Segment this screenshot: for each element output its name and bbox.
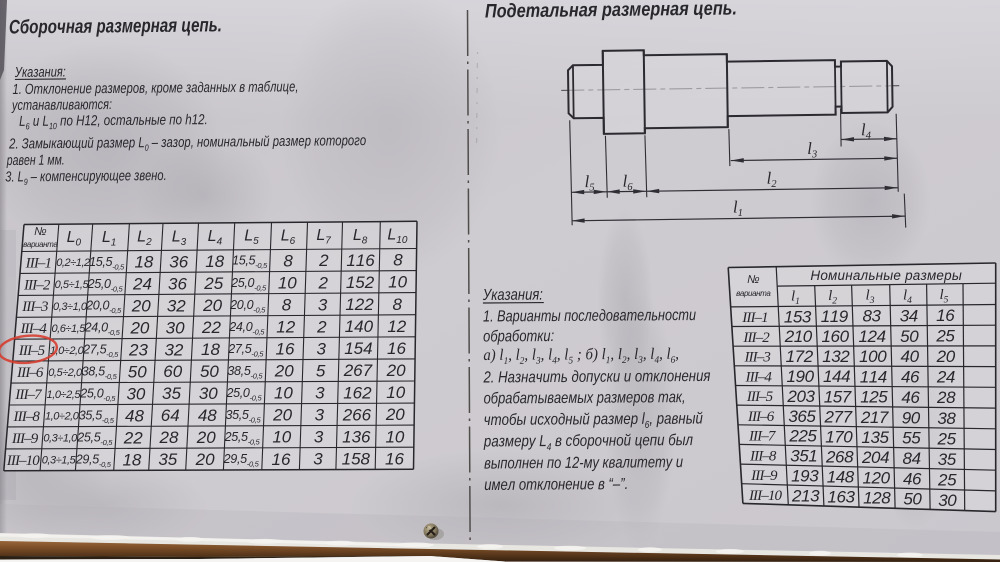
svg-text:обрабатываемых размеров так,: обрабатываемых размеров так,	[484, 389, 686, 407]
svg-text:203: 203	[786, 387, 815, 406]
svg-text:136: 136	[342, 427, 371, 446]
svg-text:24: 24	[132, 275, 152, 294]
svg-text:III–5: III–5	[746, 389, 774, 405]
svg-text:23: 23	[128, 341, 148, 360]
svg-text:12: 12	[387, 317, 406, 336]
svg-text:0,3÷1,0: 0,3÷1,0	[53, 301, 88, 313]
svg-text:Указания:: Указания:	[482, 287, 543, 304]
svg-text:0,3÷1,5: 0,3÷1,5	[42, 455, 77, 467]
svg-text:III–4: III–4	[745, 369, 773, 385]
svg-text:64: 64	[161, 406, 180, 425]
svg-text:равен 1 мм.: равен 1 мм.	[6, 152, 65, 169]
svg-text:153: 153	[784, 307, 812, 326]
svg-text:154: 154	[344, 339, 372, 358]
svg-text:50: 50	[128, 362, 147, 381]
svg-text:18: 18	[122, 450, 141, 469]
svg-text:8: 8	[283, 252, 293, 271]
svg-text:162: 162	[343, 383, 372, 402]
svg-text:1,0÷2,5: 1,0÷2,5	[47, 389, 82, 401]
svg-text:III–7: III–7	[14, 387, 43, 403]
svg-text:16: 16	[385, 449, 404, 468]
svg-text:16: 16	[276, 340, 295, 359]
svg-text:152: 152	[346, 273, 375, 292]
svg-text:160: 160	[822, 327, 850, 346]
svg-text:46: 46	[901, 388, 920, 407]
svg-text:30: 30	[938, 491, 957, 510]
svg-text:10: 10	[278, 274, 297, 293]
svg-text:10: 10	[274, 384, 293, 403]
svg-text:10: 10	[385, 427, 404, 446]
svg-text:12: 12	[276, 318, 295, 337]
svg-text:20: 20	[274, 362, 294, 381]
svg-text:20: 20	[131, 297, 151, 316]
svg-text:48: 48	[125, 406, 144, 425]
svg-text:46: 46	[901, 368, 920, 387]
svg-text:135: 135	[861, 428, 889, 447]
svg-text:18: 18	[201, 340, 220, 359]
svg-text:20: 20	[272, 406, 292, 425]
svg-text:3: 3	[318, 295, 328, 314]
svg-text:варианта: варианта	[23, 240, 58, 249]
svg-text:0,5÷2,0: 0,5÷2,0	[48, 367, 83, 379]
svg-text:217: 217	[860, 408, 889, 427]
svg-text:50: 50	[903, 490, 922, 509]
svg-text:210: 210	[784, 327, 813, 346]
svg-text:0,2÷1,2: 0,2÷1,2	[56, 257, 90, 269]
svg-text:170: 170	[825, 427, 853, 446]
svg-text:10: 10	[388, 273, 407, 292]
svg-text:60: 60	[163, 362, 182, 381]
svg-text:124: 124	[859, 327, 886, 346]
svg-text:5: 5	[316, 361, 326, 380]
svg-text:120: 120	[863, 468, 891, 487]
svg-text:20: 20	[129, 319, 149, 338]
svg-text:30: 30	[166, 318, 185, 337]
svg-text:выполнен по 12-му квалитету и: выполнен по 12-му квалитету и	[484, 454, 683, 472]
svg-text:48: 48	[198, 406, 217, 425]
svg-text:225: 225	[788, 427, 817, 446]
svg-text:119: 119	[821, 307, 849, 326]
svg-text:266: 266	[342, 405, 372, 424]
svg-text:157: 157	[824, 387, 852, 406]
svg-text:III–2: III–2	[23, 277, 51, 293]
svg-text:20: 20	[385, 405, 405, 424]
svg-text:0,3÷1,0: 0,3÷1,0	[43, 433, 78, 445]
svg-text:20: 20	[202, 296, 222, 315]
svg-text:90: 90	[902, 408, 921, 427]
svg-text:III–6: III–6	[747, 409, 775, 425]
svg-text:III–6: III–6	[16, 365, 44, 381]
svg-text:16: 16	[272, 450, 291, 469]
svg-text:351: 351	[790, 447, 817, 466]
svg-text:Сборочная размерная цепь.: Сборочная размерная цепь.	[9, 14, 222, 38]
svg-text:2. Назначить допуски и отклоне: 2. Назначить допуски и отклонения	[483, 368, 711, 387]
svg-text:32: 32	[167, 296, 186, 315]
svg-text:Номинальные размеры: Номинальные размеры	[810, 268, 962, 283]
svg-text:25: 25	[935, 327, 955, 346]
svg-text:III–8: III–8	[749, 448, 777, 464]
svg-text:122: 122	[345, 295, 374, 314]
svg-text:25: 25	[937, 470, 957, 489]
svg-text:варианта: варианта	[736, 289, 771, 298]
svg-text:128: 128	[863, 489, 891, 508]
svg-text:III–8: III–8	[13, 409, 41, 425]
svg-text:20: 20	[195, 450, 215, 469]
svg-text:Подетальная размерная цепь.: Подетальная размерная цепь.	[485, 0, 737, 22]
svg-text:125: 125	[860, 388, 888, 407]
svg-text:20: 20	[936, 347, 956, 366]
svg-text:50: 50	[900, 327, 919, 346]
svg-text:163: 163	[827, 488, 855, 507]
svg-text:83: 83	[862, 307, 881, 326]
svg-text:3: 3	[315, 406, 325, 425]
svg-text:20: 20	[386, 361, 406, 380]
svg-text:28: 28	[936, 388, 956, 407]
svg-text:55: 55	[902, 429, 921, 448]
svg-text:1. Отклонение размеров, кроме: 1. Отклонение размеров, кроме заданных в…	[12, 79, 298, 98]
svg-text:114: 114	[860, 367, 887, 386]
svg-text:III–9: III–9	[11, 431, 39, 447]
svg-text:размеру L4 в сборочной цепи бы: размеру L4 в сборочной цепи был	[483, 432, 693, 453]
svg-text:100: 100	[859, 347, 887, 366]
svg-text:25: 25	[203, 274, 223, 293]
svg-text:158: 158	[342, 450, 371, 469]
svg-text:0,6÷1,5: 0,6÷1,5	[51, 323, 86, 335]
svg-text:№: №	[34, 226, 47, 238]
svg-text:III–1: III–1	[741, 310, 768, 326]
svg-text:36: 36	[169, 252, 188, 271]
svg-text:18: 18	[205, 252, 224, 271]
svg-text:267: 267	[343, 361, 373, 380]
svg-text:365: 365	[788, 407, 816, 426]
svg-text:обработки:: обработки:	[483, 328, 554, 345]
svg-text:172: 172	[786, 347, 814, 366]
svg-text:1,0÷2,0: 1,0÷2,0	[45, 411, 80, 423]
svg-text:40: 40	[901, 347, 920, 366]
svg-text:8: 8	[282, 296, 292, 315]
svg-text:24: 24	[936, 368, 955, 387]
svg-text:36: 36	[168, 274, 187, 293]
svg-text:3: 3	[314, 428, 324, 447]
svg-text:Указания:: Указания:	[14, 64, 66, 80]
svg-text:16: 16	[387, 339, 406, 358]
svg-text:25: 25	[937, 429, 957, 448]
svg-text:2: 2	[316, 317, 327, 336]
svg-text:10: 10	[386, 383, 405, 402]
svg-text:193: 193	[791, 467, 819, 486]
svg-text:34: 34	[900, 307, 918, 326]
svg-text:35: 35	[938, 450, 957, 469]
svg-text:38: 38	[937, 409, 956, 428]
svg-text:III–5: III–5	[18, 343, 46, 359]
svg-text:1. Варианты последовательности: 1. Варианты последовательности	[483, 307, 696, 325]
svg-text:3: 3	[316, 339, 326, 358]
svg-text:2: 2	[318, 251, 329, 270]
svg-text:30: 30	[199, 384, 218, 403]
svg-text:148: 148	[827, 468, 855, 487]
svg-text:8: 8	[392, 295, 402, 314]
svg-text:III–10: III–10	[6, 453, 40, 469]
svg-text:30: 30	[126, 384, 145, 403]
svg-text:III–1: III–1	[25, 255, 52, 271]
svg-text:32: 32	[164, 340, 183, 359]
svg-text:140: 140	[345, 317, 374, 336]
svg-text:28: 28	[159, 428, 179, 447]
svg-text:144: 144	[823, 367, 850, 386]
svg-text:50: 50	[200, 362, 219, 381]
svg-text:204: 204	[861, 448, 889, 467]
svg-text:3: 3	[313, 450, 323, 469]
svg-text:№: №	[747, 274, 760, 286]
svg-text:3: 3	[315, 384, 325, 403]
svg-text:10: 10	[272, 428, 291, 447]
svg-text:35: 35	[158, 450, 177, 469]
svg-text:132: 132	[822, 347, 850, 366]
svg-text:84: 84	[903, 449, 921, 468]
svg-text:190: 190	[787, 367, 815, 386]
svg-text:116: 116	[346, 251, 375, 270]
svg-text:16: 16	[936, 306, 955, 325]
svg-text:8: 8	[393, 251, 403, 270]
svg-text:20: 20	[196, 428, 216, 447]
svg-text:18: 18	[134, 253, 153, 272]
svg-text:213: 213	[791, 487, 820, 506]
svg-text:имел отклонение в “–”.: имел отклонение в “–”.	[484, 476, 628, 494]
svg-text:35: 35	[162, 384, 181, 403]
svg-text:22: 22	[123, 428, 143, 447]
svg-text:III–9: III–9	[750, 468, 778, 484]
svg-text:46: 46	[903, 469, 922, 488]
svg-text:2: 2	[317, 273, 328, 292]
svg-text:277: 277	[824, 407, 853, 426]
svg-text:0,5÷1,5: 0,5÷1,5	[55, 279, 90, 291]
svg-text:268: 268	[825, 447, 854, 466]
svg-text:22: 22	[201, 318, 221, 337]
svg-text:III–10: III–10	[748, 488, 782, 504]
svg-text:III–3: III–3	[21, 299, 48, 315]
svg-text:III–2: III–2	[742, 330, 770, 346]
svg-text:III–7: III–7	[748, 429, 777, 445]
svg-text:III–3: III–3	[743, 350, 770, 366]
